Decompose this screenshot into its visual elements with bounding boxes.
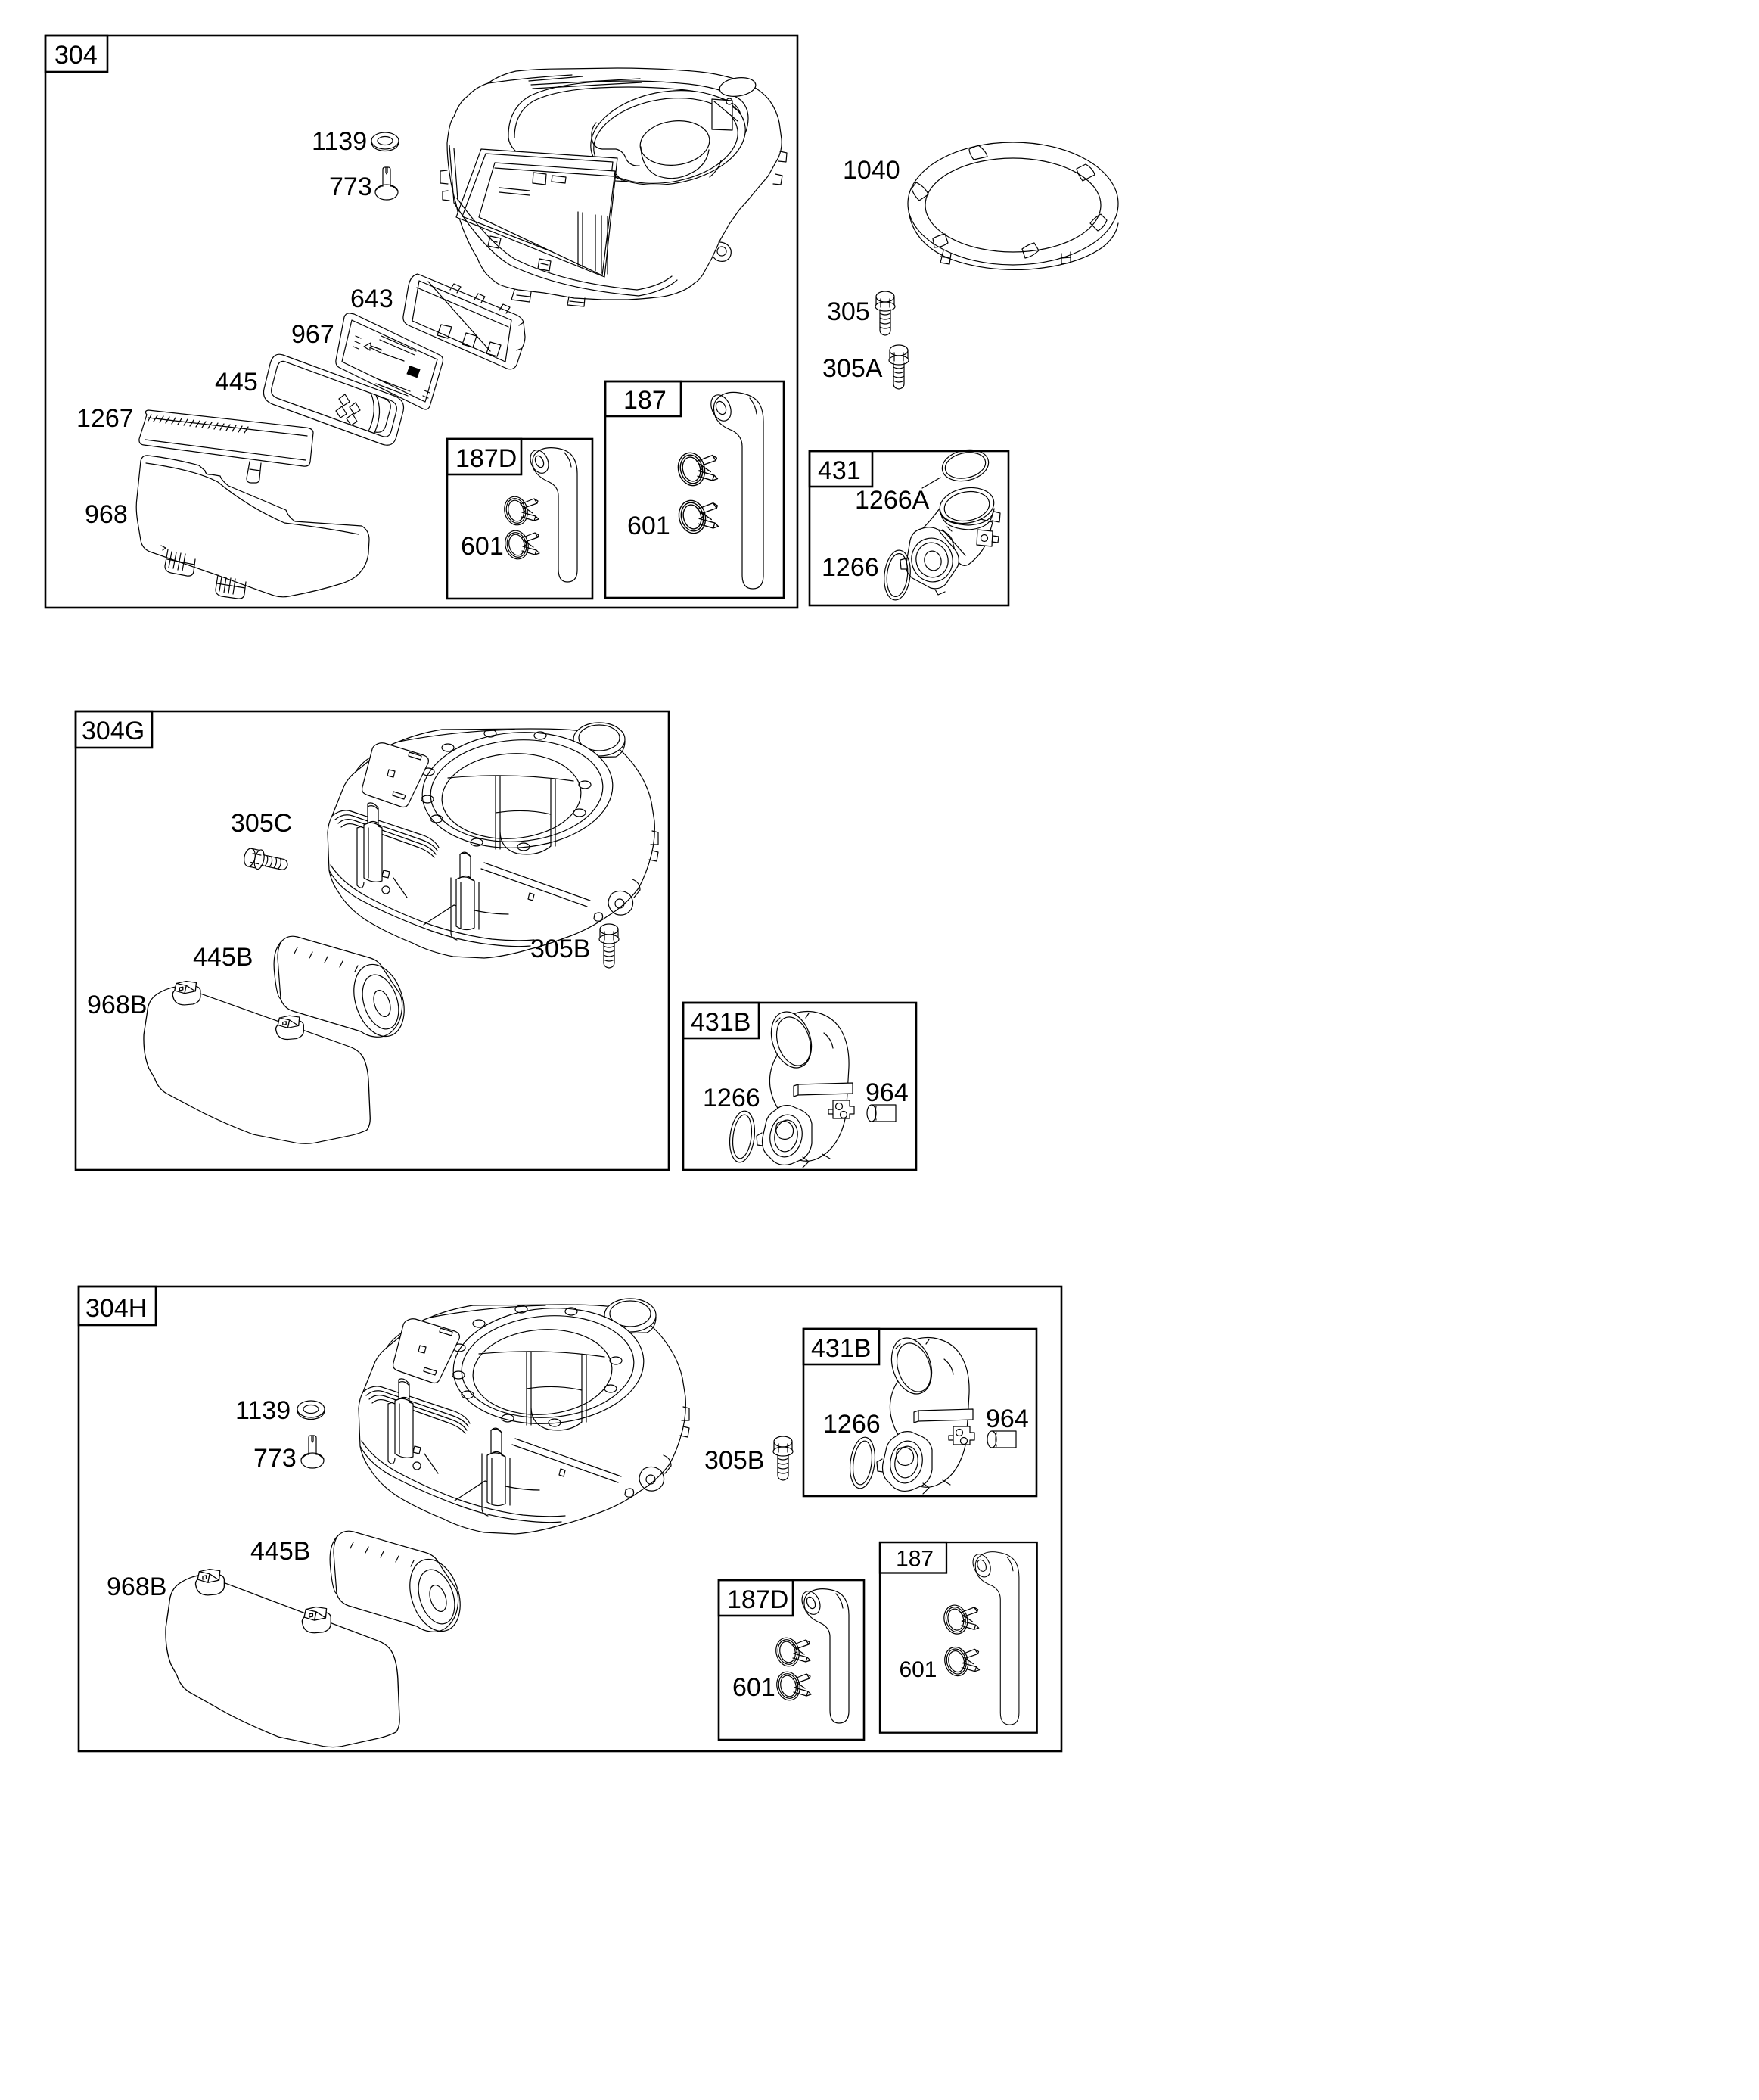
svg-text:773: 773: [329, 173, 372, 201]
svg-text:305B: 305B: [530, 935, 590, 963]
svg-text:305: 305: [827, 297, 870, 326]
svg-text:1266A: 1266A: [855, 486, 930, 515]
svg-text:968: 968: [85, 500, 128, 529]
svg-text:1139: 1139: [312, 127, 367, 156]
svg-text:304H: 304H: [85, 1294, 147, 1323]
svg-text:968B: 968B: [87, 991, 147, 1019]
svg-text:445B: 445B: [193, 943, 253, 972]
svg-text:304: 304: [54, 41, 98, 70]
svg-text:643: 643: [350, 285, 393, 313]
svg-text:967: 967: [291, 320, 334, 349]
svg-text:431: 431: [818, 456, 861, 485]
svg-text:305B: 305B: [704, 1446, 764, 1475]
svg-text:304G: 304G: [82, 717, 145, 745]
svg-text:1266: 1266: [822, 553, 879, 582]
svg-text:445: 445: [215, 368, 258, 397]
svg-text:305A: 305A: [822, 354, 883, 383]
svg-text:1267: 1267: [76, 404, 134, 433]
svg-text:773: 773: [253, 1444, 297, 1473]
svg-text:1139: 1139: [235, 1396, 291, 1425]
svg-text:305C: 305C: [231, 809, 292, 838]
svg-text:968B: 968B: [107, 1573, 166, 1601]
svg-text:1040: 1040: [843, 156, 900, 185]
svg-text:445B: 445B: [250, 1537, 310, 1566]
